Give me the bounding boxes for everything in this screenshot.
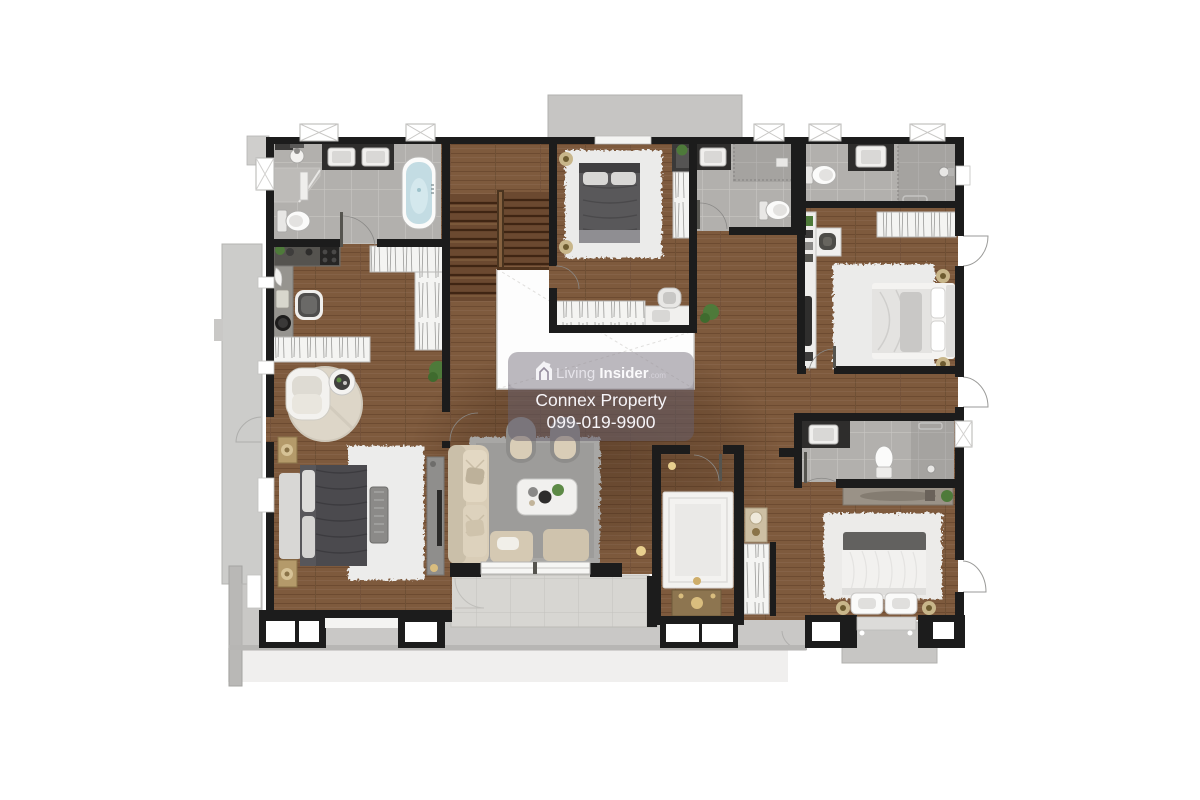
- svg-text:Connex Property: Connex Property: [535, 390, 667, 410]
- svg-text:099-019-9900: 099-019-9900: [547, 412, 656, 432]
